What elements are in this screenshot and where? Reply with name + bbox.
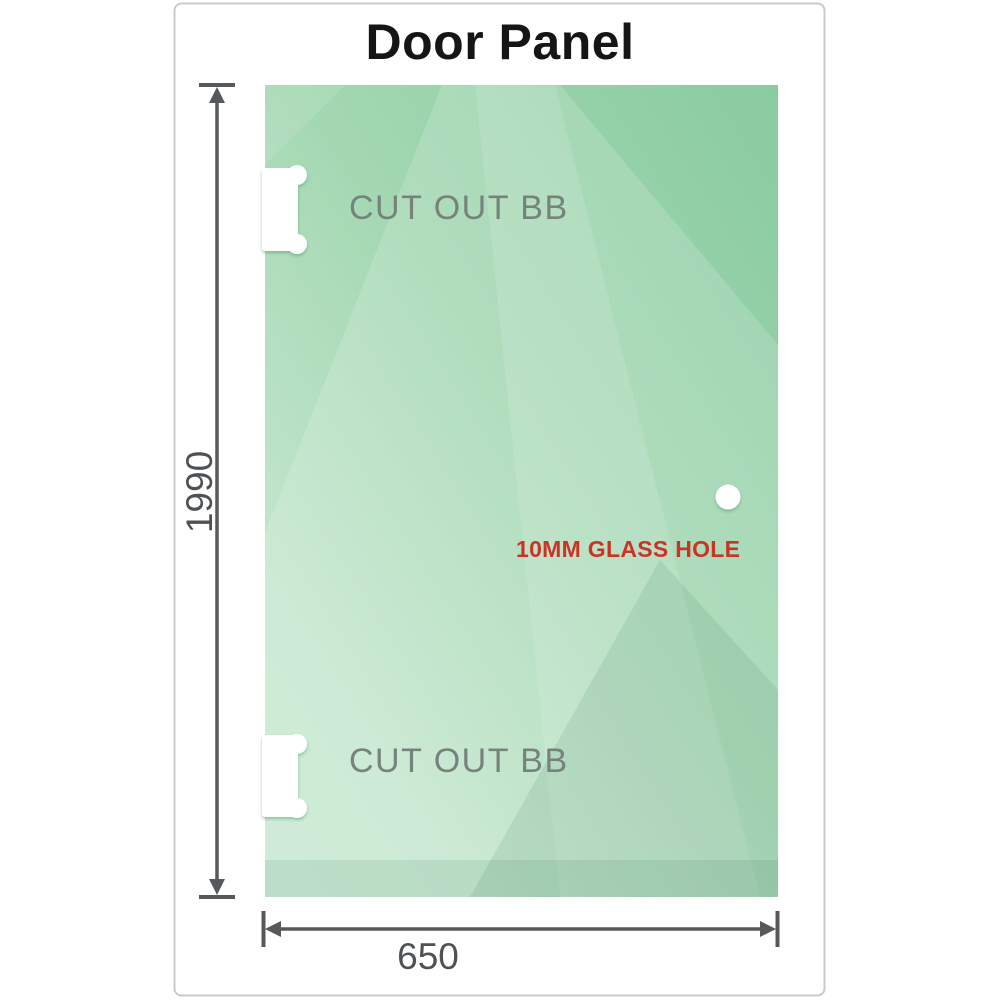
height-dimension-label: 1990 xyxy=(161,453,239,531)
glass-hole xyxy=(716,485,741,510)
door-panel-diagram: Door Panel 1990 650 CUT OUT BB CUT OUT B… xyxy=(0,0,1000,1000)
page-title: Door Panel xyxy=(175,14,825,70)
diagram-canvas xyxy=(0,0,1000,1000)
width-dimension-label: 650 xyxy=(378,937,478,977)
cutout-top-label: CUT OUT BB xyxy=(349,187,569,229)
cutout-bottom-label: CUT OUT BB xyxy=(349,740,569,782)
glass-hole-label: 10MM GLASS HOLE xyxy=(516,535,740,563)
